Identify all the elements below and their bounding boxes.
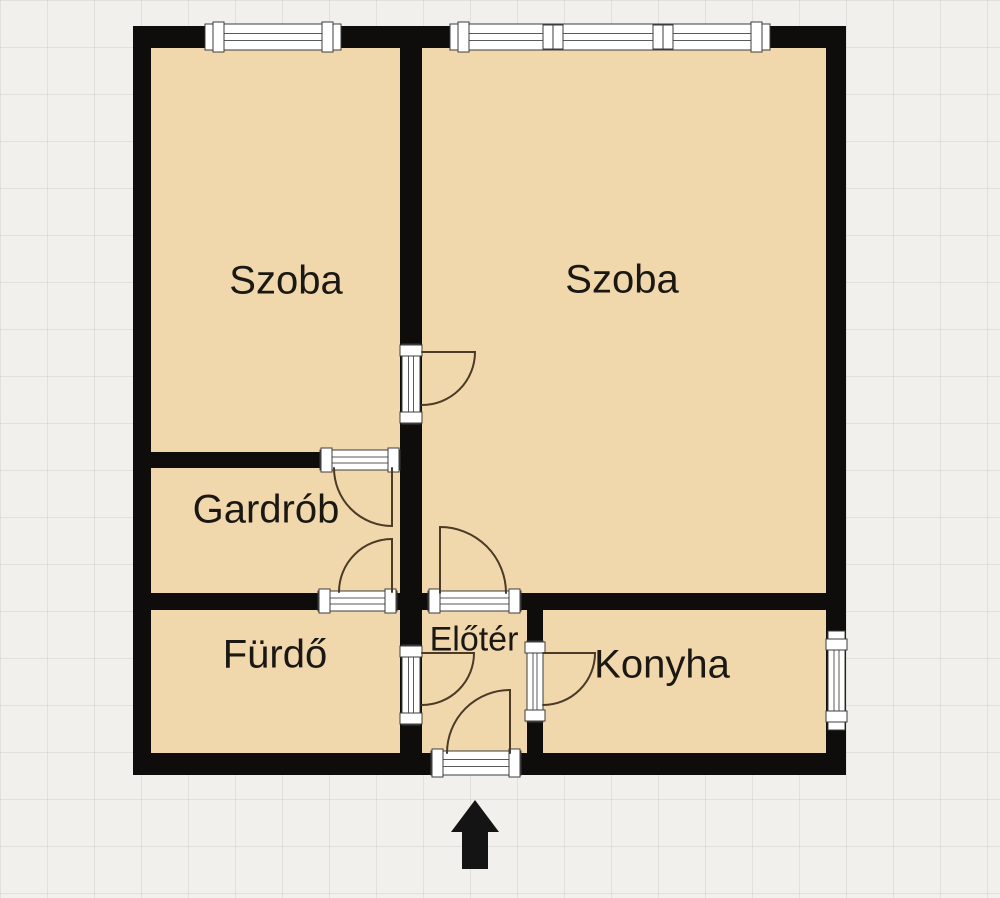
window-szoba-right-mullion <box>653 25 663 49</box>
door-frame-eloter-szoba <box>428 591 521 611</box>
window-szoba-right-cap <box>751 22 762 52</box>
door-frame-furdo-cap <box>400 646 422 657</box>
door-frame-konyha-cap <box>525 710 545 721</box>
window-szoba-right-cap <box>458 22 469 52</box>
window-szoba-left-cap <box>322 22 333 52</box>
window-szoba-right-mullion <box>553 25 563 49</box>
floorplan-canvas: Szoba Szoba Gardrób Fürdő Előtér Konyha <box>0 0 1000 898</box>
door-frame-furdo-cap <box>400 713 422 724</box>
door-frame-gardrob-also-cap <box>385 589 396 613</box>
door-frame-bejarat <box>431 751 521 775</box>
window-szoba-right-mullion <box>663 25 673 49</box>
wall-left <box>133 26 151 775</box>
door-frame-eloter-szoba-cap <box>509 589 520 613</box>
window-szoba-left-cap <box>213 22 224 52</box>
window-konyha-cap <box>826 711 847 722</box>
window-szoba-left <box>205 24 341 50</box>
floor-area <box>133 26 846 775</box>
door-frame-gardrob-felso-cap <box>388 448 399 472</box>
floor-plan-drawing <box>0 0 1000 898</box>
window-szoba-right <box>450 24 770 50</box>
door-frame-konyha-cap <box>525 642 545 653</box>
window-szoba-right-mullion <box>543 25 553 49</box>
door-frame-bejarat-cap <box>432 749 443 777</box>
door-frame-szoba-right-cap <box>400 345 422 356</box>
window-konyha-cap <box>826 639 847 650</box>
door-frame-gardrob-felso-cap <box>321 448 332 472</box>
door-frame-szoba-right-cap <box>400 412 422 423</box>
door-frame-gardrob-also-cap <box>319 589 330 613</box>
door-frame-eloter-szoba-cap <box>429 589 440 613</box>
entrance-arrow-icon <box>451 800 499 869</box>
